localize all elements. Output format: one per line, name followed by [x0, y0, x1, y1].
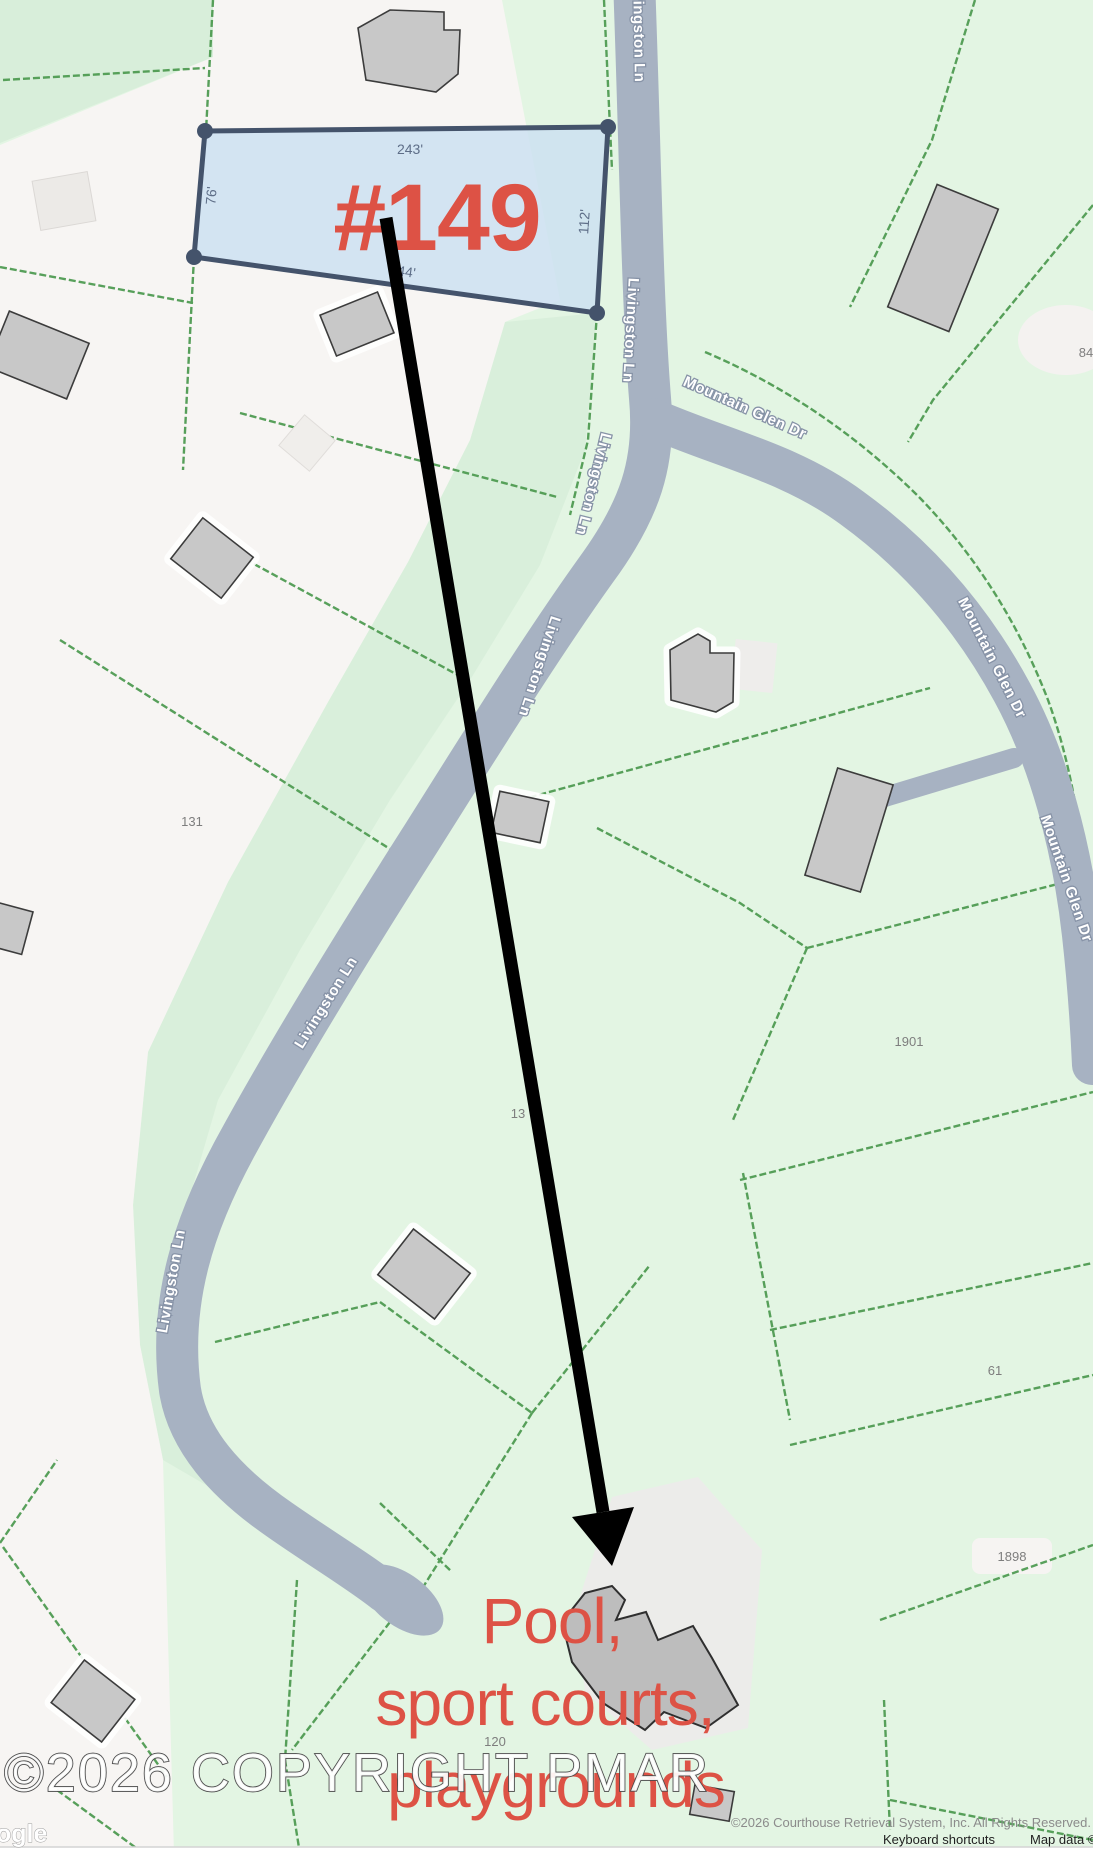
parcel-vertex — [600, 119, 616, 135]
parcel-149-label: #149 — [333, 165, 540, 271]
parcel-number-131: 131 — [181, 814, 203, 829]
annotation-line-2: sport courts, — [375, 1667, 714, 1739]
parcel-vertex — [589, 305, 605, 321]
copyright-watermark: ©2026 COPYRIGHT PMAR — [4, 1743, 710, 1803]
dimension-right: 112' — [575, 209, 593, 235]
parcel-number-84: 84 — [1079, 345, 1093, 360]
google-logo[interactable]: ogle — [0, 1820, 47, 1848]
map-data-link[interactable]: Map data ©2026 — [1030, 1832, 1093, 1847]
building — [358, 10, 460, 92]
parcel-vertex — [197, 123, 213, 139]
map-canvas[interactable]: 243' 76' 112' 244' #149 Livingston Ln Li… — [0, 0, 1093, 1854]
bottom-bar — [0, 1847, 1093, 1854]
parcel-number-1901: 1901 — [895, 1034, 924, 1049]
keyboard-shortcuts-link[interactable]: Keyboard shortcuts — [883, 1832, 996, 1847]
dimension-top: 243' — [397, 141, 423, 157]
parcel-number-13: 13 — [511, 1106, 525, 1121]
parcel-vertex — [186, 249, 202, 265]
parcel-number-61: 61 — [988, 1363, 1002, 1378]
parcel-map[interactable]: 243' 76' 112' 244' #149 Livingston Ln Li… — [0, 0, 1093, 1854]
attribution-rights: ©2026 Courthouse Retrieval System, Inc. … — [731, 1815, 1091, 1830]
dimension-left: 76' — [202, 186, 220, 206]
annotation-line-1: Pool, — [482, 1585, 623, 1657]
parcel-number-1898: 1898 — [998, 1549, 1027, 1564]
road-label-livingston: Livingston Ln — [629, 0, 648, 82]
building-white — [32, 172, 96, 231]
